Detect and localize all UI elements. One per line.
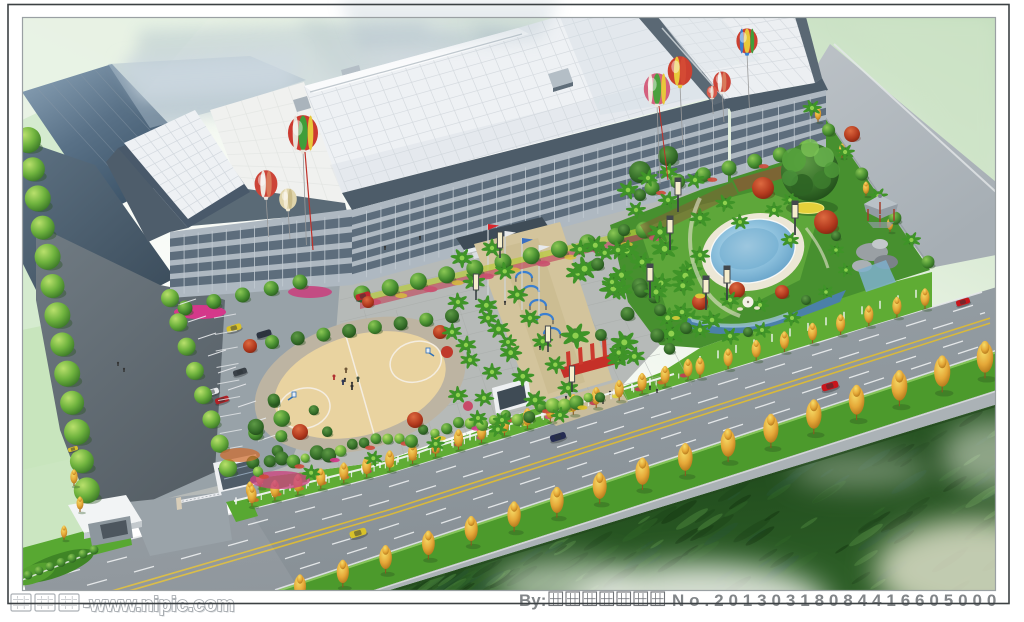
svg-text:-www.nipic.com: -www.nipic.com <box>83 594 235 616</box>
svg-text:By:: By: <box>519 591 546 610</box>
svg-text:No.20130318084416605000: No.20130318084416605000 <box>672 591 1001 610</box>
